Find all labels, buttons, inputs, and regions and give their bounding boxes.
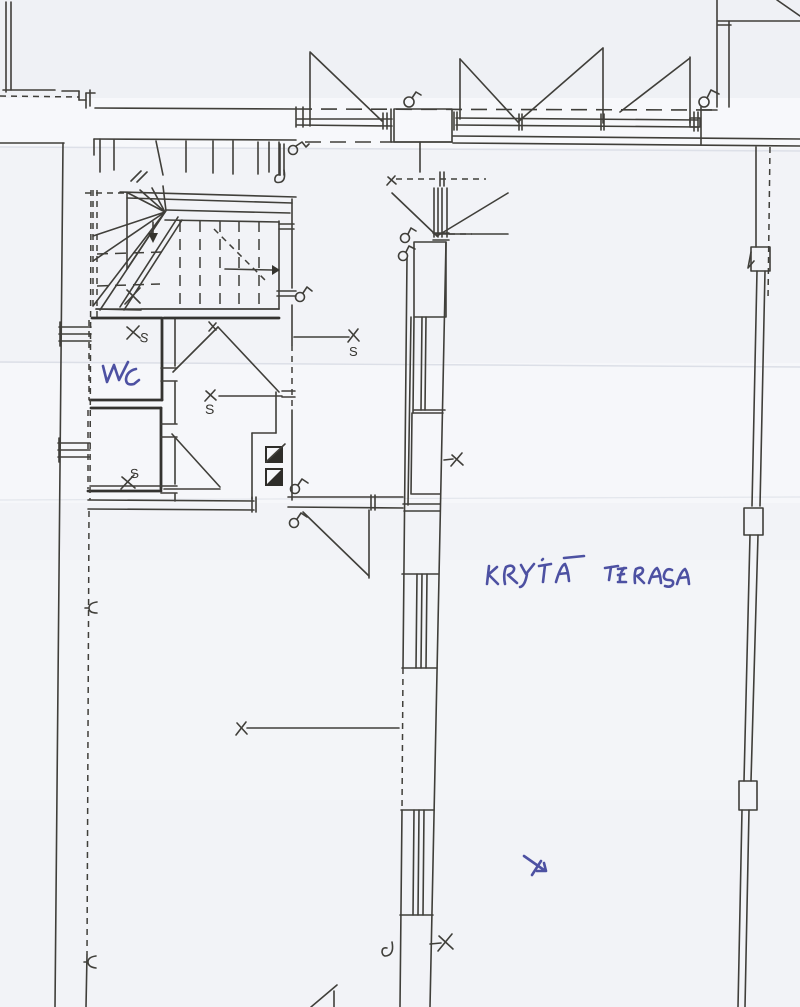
svg-text:S: S: [205, 401, 214, 417]
svg-text:S: S: [349, 344, 358, 359]
